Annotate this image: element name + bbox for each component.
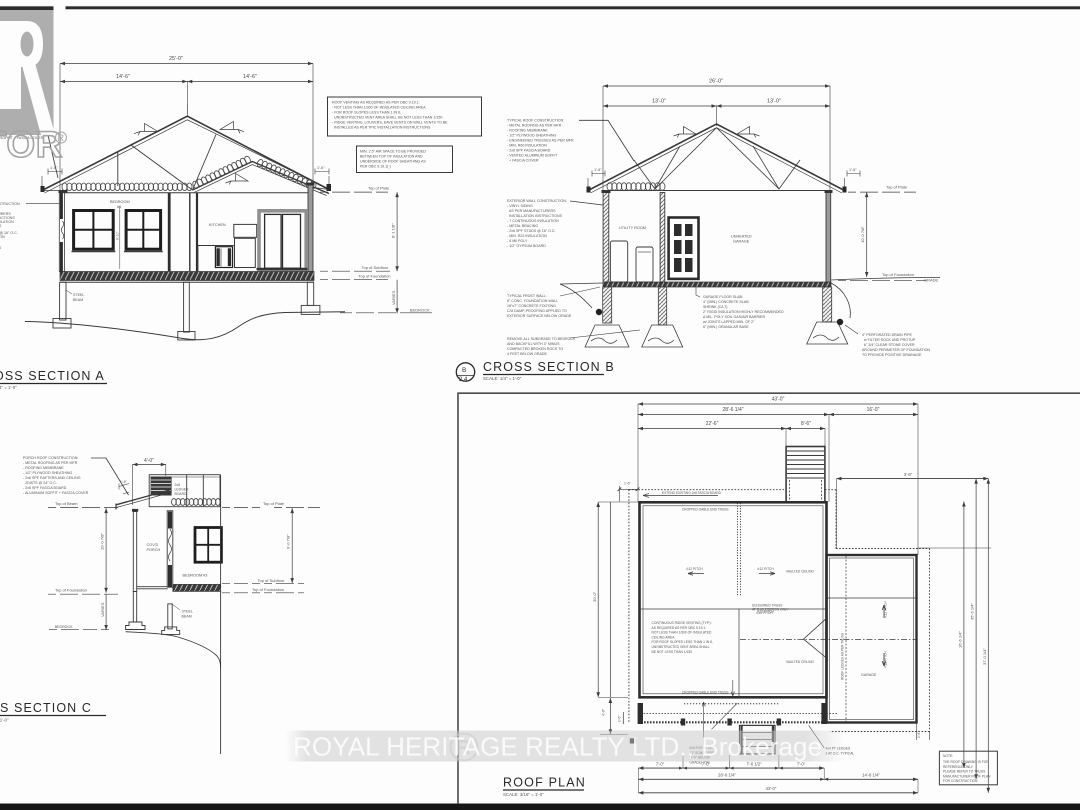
- svg-text:GARAGE: GARAGE: [861, 673, 877, 677]
- svg-text:SCALE: 1/4" = 1'-0": SCALE: 1/4" = 1'-0": [483, 376, 522, 381]
- svg-text:ROOF VENTING AS REQUIRED AS PE: ROOF VENTING AS REQUIRED AS PER OBC 9.19…: [332, 101, 449, 130]
- svg-text:3'-6": 3'-6": [904, 472, 913, 477]
- svg-text:ROOF LEDGES AS PER TRUSS: ROOF LEDGES AS PER TRUSS: [841, 633, 845, 680]
- svg-text:BEDROOM: BEDROOM: [110, 200, 130, 204]
- svg-text:Top of Foundation: Top of Foundation: [55, 588, 87, 593]
- svg-text:1'-6": 1'-6": [120, 480, 128, 484]
- svg-text:7'-6 1/2": 7'-6 1/2": [746, 761, 762, 766]
- svg-text:BOARD: BOARD: [175, 492, 188, 496]
- svg-text:4:12 PITCH: 4:12 PITCH: [756, 611, 773, 615]
- svg-text:4:12 PITCH: 4:12 PITCH: [884, 651, 888, 668]
- svg-text:EXTERIOR WALL CONSTRUCTION: -: EXTERIOR WALL CONSTRUCTION: - VINYL SIDI…: [507, 199, 568, 248]
- svg-text:UTILITY ROOM: UTILITY ROOM: [619, 226, 646, 230]
- svg-text:PORCH ROOF CONSTRUCTION: - MET: PORCH ROOF CONSTRUCTION: - METAL ROOFING…: [23, 456, 89, 495]
- svg-text:CROPPED GABLE END TRUSS: CROPPED GABLE END TRUSS: [682, 508, 729, 512]
- svg-text:10'-0 7/8": 10'-0 7/8": [100, 533, 105, 550]
- svg-text:NSTRUCTION TURERS RUCTIONS SUL: NSTRUCTION TURERS RUCTIONS SULATION NG S…: [0, 202, 21, 250]
- svg-text:1'-6": 1'-6": [50, 166, 58, 170]
- svg-text:= 1'-0": = 1'-0": [0, 718, 9, 723]
- svg-text:R: R: [58, 133, 65, 143]
- svg-text:26'-0": 26'-0": [709, 79, 723, 85]
- svg-text:2x8: 2x8: [175, 483, 181, 487]
- svg-text:4" PERFORATED DRAIN PIPE w FIL: 4" PERFORATED DRAIN PIPE w FILTER SOCK A…: [862, 333, 931, 357]
- svg-text:Top of Plate: Top of Plate: [263, 501, 285, 506]
- svg-text:BEAM: BEAM: [182, 615, 192, 619]
- svg-text:1'-6": 1'-6": [917, 732, 921, 738]
- svg-text:28'-6 1/4": 28'-6 1/4": [718, 773, 736, 778]
- svg-text:1'-6": 1'-6": [317, 166, 325, 170]
- svg-text:BEAM: BEAM: [73, 298, 83, 302]
- svg-text:Top of Subfloor: Top of Subfloor: [362, 265, 390, 270]
- svg-text:TYPICAL ROOF CONSTRUCTION: - M: TYPICAL ROOF CONSTRUCTION: - METAL ROOFI…: [507, 119, 575, 163]
- svg-text:4:12 PITCH: 4:12 PITCH: [757, 567, 774, 571]
- svg-text:9'-0 7/8": 9'-0 7/8": [286, 534, 291, 549]
- svg-text:Top of Foundation: Top of Foundation: [882, 272, 914, 277]
- svg-text:LEDGER: LEDGER: [175, 488, 189, 492]
- svg-text:S SECTION C: S SECTION C: [0, 701, 92, 715]
- svg-text:VAULTED CEILING: VAULTED CEILING: [786, 570, 814, 574]
- svg-text:37'-0 1/4": 37'-0 1/4": [982, 648, 987, 665]
- svg-text:STEEL: STEEL: [73, 293, 84, 297]
- svg-text:GRADE: GRADE: [924, 278, 939, 283]
- svg-text:43'-0": 43'-0": [772, 397, 785, 403]
- svg-text:OSS SECTION A: OSS SECTION A: [0, 369, 105, 383]
- svg-text:1'-6": 1'-6": [849, 168, 857, 172]
- svg-text:1'-6": 1'-6": [594, 168, 602, 172]
- svg-text:B: B: [462, 367, 466, 374]
- svg-text:8'-1 1/8": 8'-1 1/8": [391, 223, 396, 238]
- svg-text:EXTEND EXISTING 2x8 FASCIA BOA: EXTEND EXISTING 2x8 FASCIA BOARD: [662, 491, 722, 495]
- svg-text:TOR: TOR: [0, 124, 63, 165]
- svg-text:10'-0 7/8": 10'-0 7/8": [860, 226, 865, 243]
- svg-text:7'-0": 7'-0": [656, 761, 665, 766]
- svg-text:VARIES: VARIES: [391, 290, 396, 305]
- svg-text:Top of Foundation: Top of Foundation: [359, 274, 391, 279]
- svg-text:4'-0": 4'-0": [602, 708, 606, 716]
- svg-text:#1: #1: [117, 205, 121, 209]
- svg-text:NOTE: THE ROOF DRAWING IS FOR: NOTE: THE ROOF DRAWING IS FOR REFERENCE …: [943, 754, 991, 783]
- svg-text:E: 1/4" = 1'-0": E: 1/4" = 1'-0": [0, 385, 17, 390]
- svg-text:43'-0": 43'-0": [766, 786, 777, 791]
- svg-text:16'-0": 16'-0": [867, 407, 880, 413]
- svg-text:Top of Subfloor: Top of Subfloor: [258, 578, 286, 583]
- svg-text:13'-0": 13'-0": [767, 99, 781, 105]
- svg-text:TYPICAL FROST WALL: 8" CONC. F: TYPICAL FROST WALL: 8" CONC. FOUNDATION …: [507, 294, 572, 318]
- svg-text:Top of Plate: Top of Plate: [886, 185, 908, 190]
- svg-text:UNHEATED: UNHEATED: [731, 235, 752, 239]
- svg-text:BEDROCK: BEDROCK: [410, 308, 430, 313]
- svg-text:Top of Beam: Top of Beam: [55, 501, 78, 506]
- svg-text:28'-6 1/4": 28'-6 1/4": [722, 407, 743, 413]
- svg-text:VAULTED CEILING: VAULTED CEILING: [786, 660, 814, 664]
- svg-text:1'-6": 1'-6": [618, 716, 622, 722]
- svg-text:ROYAL HERITAGE REALTY LTD., Br: ROYAL HERITAGE REALTY LTD., Brokerage: [293, 732, 822, 762]
- svg-text:22'-6": 22'-6": [706, 421, 719, 427]
- svg-text:4'-0": 4'-0": [144, 458, 154, 464]
- svg-text:COV'D: COV'D: [147, 543, 159, 547]
- svg-text:30'-0": 30'-0": [592, 591, 597, 602]
- svg-text:ROOF PLAN: ROOF PLAN: [503, 776, 586, 790]
- svg-text:Top of Foundation: Top of Foundation: [252, 587, 284, 592]
- svg-text:KITCHEN: KITCHEN: [209, 223, 226, 227]
- svg-text:1'-6": 1'-6": [624, 482, 632, 486]
- svg-text:7'-0": 7'-0": [702, 761, 711, 766]
- svg-text:16'-6 1/4": 16'-6 1/4": [958, 631, 963, 648]
- svg-text:4:12 PITCH: 4:12 PITCH: [884, 601, 888, 618]
- svg-text:GARAGE FLOOR SLAB: 4" (MIN.) C: GARAGE FLOOR SLAB: 4" (MIN.) CONCRETE SL…: [703, 295, 785, 329]
- svg-text:CROSS SECTION B: CROSS SECTION B: [483, 360, 615, 374]
- svg-text:8'-6": 8'-6": [801, 421, 811, 427]
- svg-text:14'-8 1/4": 14'-8 1/4": [862, 773, 880, 778]
- svg-text:25'-0": 25'-0": [169, 56, 183, 62]
- svg-text:35'-6 1/4": 35'-6 1/4": [970, 603, 975, 620]
- svg-text:2,4: 2,4: [459, 377, 468, 383]
- svg-text:Top of Plate: Top of Plate: [368, 186, 390, 191]
- svg-text:VARIES: VARIES: [100, 602, 105, 617]
- svg-text:6'-10": 6'-10": [116, 231, 120, 240]
- svg-text:4:12 PITCH: 4:12 PITCH: [686, 567, 703, 571]
- svg-text:14'-6": 14'-6": [243, 74, 257, 80]
- svg-text:BEDROOM #3: BEDROOM #3: [183, 574, 208, 578]
- svg-text:SCALE: 3/16" = 1'-0": SCALE: 3/16" = 1'-0": [503, 792, 544, 797]
- svg-text:13'-0": 13'-0": [652, 99, 666, 105]
- svg-text:PORCH: PORCH: [147, 548, 161, 552]
- svg-text:REMOVE ALL SUBGRADE TO BEDROCK: REMOVE ALL SUBGRADE TO BEDROCK AND BACKF…: [507, 337, 576, 356]
- svg-text:7'-0": 7'-0": [797, 761, 806, 766]
- svg-text:BEDROCK: BEDROCK: [55, 625, 73, 629]
- svg-text:GARAGE: GARAGE: [733, 240, 750, 244]
- svg-text:MIN. 2.5" AIR SPACE TO BE PROV: MIN. 2.5" AIR SPACE TO BE PROVIDED BETWE…: [360, 150, 427, 169]
- svg-text:CROPPED GABLE END TRUSS: CROPPED GABLE END TRUSS: [682, 691, 729, 695]
- svg-text:STEEL: STEEL: [182, 610, 193, 614]
- svg-text:14'-6": 14'-6": [116, 74, 130, 80]
- svg-text:CONTINUOUS RIDGE VENTING (TYP.: CONTINUOUS RIDGE VENTING (TYP.): AS REQU…: [652, 621, 714, 654]
